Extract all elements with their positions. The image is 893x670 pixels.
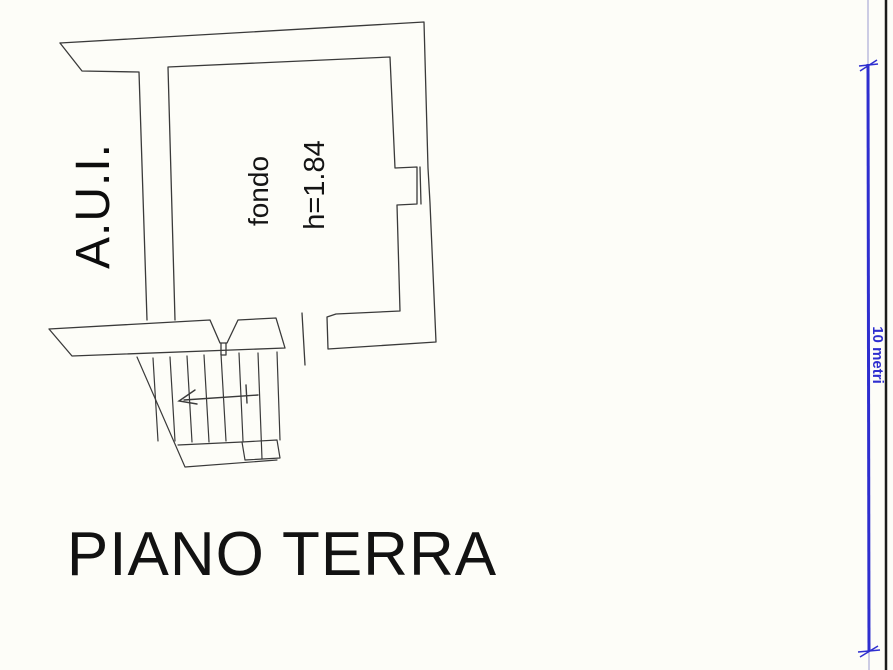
room-label: fondo — [245, 111, 277, 271]
arrow-start-tick — [246, 385, 247, 403]
arrow-head — [179, 390, 197, 404]
staircase — [137, 352, 280, 467]
floor-title: PIANO TERRA — [57, 524, 507, 586]
stair-direction-arrow — [179, 385, 258, 404]
staircase-right-edge — [277, 352, 280, 440]
door-leaf-lines — [221, 343, 226, 355]
threshold-line — [302, 313, 305, 365]
room-height-label: h=1.84 — [301, 105, 333, 265]
staircase-mid-line — [178, 442, 242, 445]
scale-label: 10 metri — [869, 320, 885, 390]
door-jamb-line — [420, 167, 421, 204]
vertical-label-aui: A.U.I. — [70, 86, 120, 326]
floorplan-page: A.U.I. fondo h=1.84 PIANO TERRA 10 metri — [0, 0, 893, 670]
